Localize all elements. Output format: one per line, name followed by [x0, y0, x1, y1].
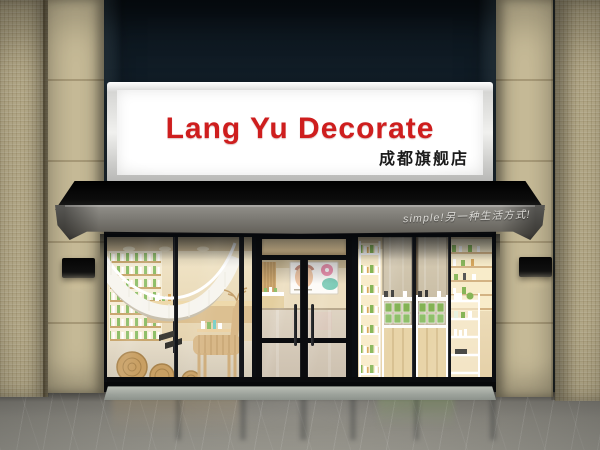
- floor-reflection-streak: [176, 396, 181, 440]
- marble-floor: [0, 392, 600, 450]
- floor-reflection-streak: [300, 396, 307, 440]
- floor-reflection-streak: [240, 396, 246, 440]
- storefront-photo: Lang Yu Decorate 成都旗舰店: [0, 0, 600, 450]
- wall-left-outer: [0, 0, 48, 397]
- ladder-shelf-right: [449, 293, 480, 386]
- door-handle-left: [294, 304, 297, 346]
- wall-sconce-right-icon: [519, 257, 552, 277]
- wall-right-outer: [555, 0, 600, 401]
- wall-sconce-left-icon: [62, 258, 95, 278]
- shop-sign: Lang Yu Decorate 成都旗舰店: [107, 82, 493, 183]
- door-mid-rail: [262, 338, 346, 343]
- sign-lightbox-face: Lang Yu Decorate 成都旗舰店: [117, 90, 483, 175]
- awning: simple!另一种生活方式!: [55, 181, 545, 240]
- sign-title: Lang Yu Decorate: [117, 112, 483, 146]
- display-table: [382, 290, 414, 383]
- door-center-stile: [300, 260, 308, 380]
- sign-subtitle: 成都旗舰店: [379, 145, 469, 169]
- door-handle-right: [311, 304, 314, 346]
- ladder-shelf-left: [359, 241, 381, 381]
- floor-reflection-streak: [490, 396, 496, 440]
- threshold-step: [104, 386, 496, 400]
- floor-reflection-streak: [414, 396, 419, 440]
- floor-reflection-streak: [350, 396, 356, 440]
- beauty-poster: [290, 262, 338, 294]
